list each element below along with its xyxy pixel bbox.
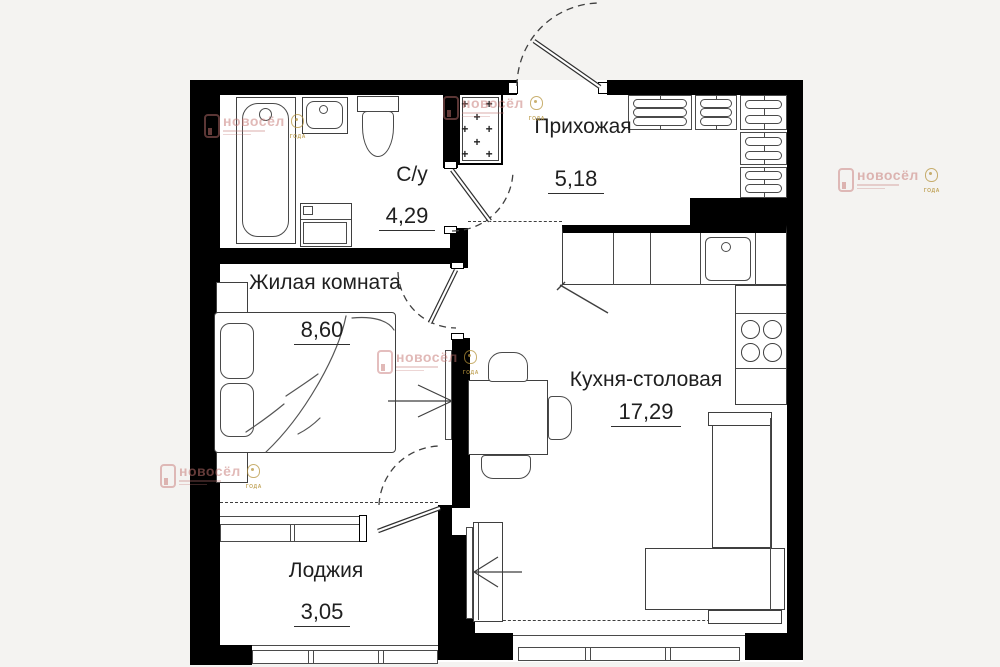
watermark-brand: новосёл ГОДА (443, 96, 545, 122)
opening-direction-arrow-living (388, 385, 452, 417)
watermark-brand: новосёл ГОДА (838, 168, 940, 194)
floor-plan: + + + + + + + + (0, 0, 1000, 667)
brand-house-icon (204, 114, 220, 138)
room-area-loggia: 3,05 (290, 599, 354, 625)
brand-wordmark: новосёл (857, 168, 919, 182)
gold-crest-icon (925, 168, 938, 182)
bathroom-door-leaf-inner (452, 170, 490, 221)
room-label-loggia: Лоджия (266, 559, 386, 583)
entrance-door-swing-arc (517, 3, 600, 86)
brand-house-icon (160, 464, 176, 488)
living-door-leaf-inner (430, 270, 456, 323)
room-area-living-room: 8,60 (290, 317, 354, 343)
award-emblem: ГОДА (290, 114, 306, 140)
brand-tagline (223, 130, 285, 135)
gold-crest-icon (530, 96, 543, 110)
brand-wordmark: новосёл (223, 114, 285, 128)
brand-tagline (396, 366, 458, 371)
award-emblem: ГОДА (463, 350, 479, 376)
brand-tagline (179, 480, 241, 485)
brand-wordmark: новосёл (179, 464, 241, 478)
room-area-hallway: 5,18 (544, 166, 608, 192)
room-area-kitchen: 17,29 (610, 399, 682, 425)
gold-crest-icon (464, 350, 477, 364)
brand-house-icon (377, 350, 393, 374)
watermark-brand: новосёл ГОДА (204, 114, 306, 140)
brand-wordmark: новосёл (462, 96, 524, 110)
balcony-door-leaf-inner (378, 508, 440, 531)
brand-house-icon (838, 168, 854, 192)
watermark-brand: новосёл ГОДА (160, 464, 262, 490)
brand-tagline (462, 112, 524, 117)
entrance-door-leaf-inner (534, 41, 600, 87)
award-emblem: ГОДА (246, 464, 262, 490)
opening-direction-arrow-kitchen (474, 557, 522, 587)
brand-house-icon (443, 96, 459, 120)
award-emblem: ГОДА (529, 96, 545, 122)
room-label-kitchen: Кухня-столовая (546, 368, 746, 392)
award-emblem: ГОДА (924, 168, 940, 194)
room-label-bathroom: С/у (380, 163, 444, 187)
gold-crest-icon (247, 464, 260, 478)
watermark-brand: новосёл ГОДА (377, 350, 479, 376)
counter-end-diagonal (557, 282, 608, 313)
room-area-bathroom: 4,29 (375, 203, 439, 229)
brand-tagline (857, 184, 919, 189)
room-label-living-room: Жилая комната (225, 271, 425, 295)
balcony-door-swing-arc (379, 446, 440, 505)
brand-wordmark: новосёл (396, 350, 458, 364)
gold-crest-icon (291, 114, 304, 128)
